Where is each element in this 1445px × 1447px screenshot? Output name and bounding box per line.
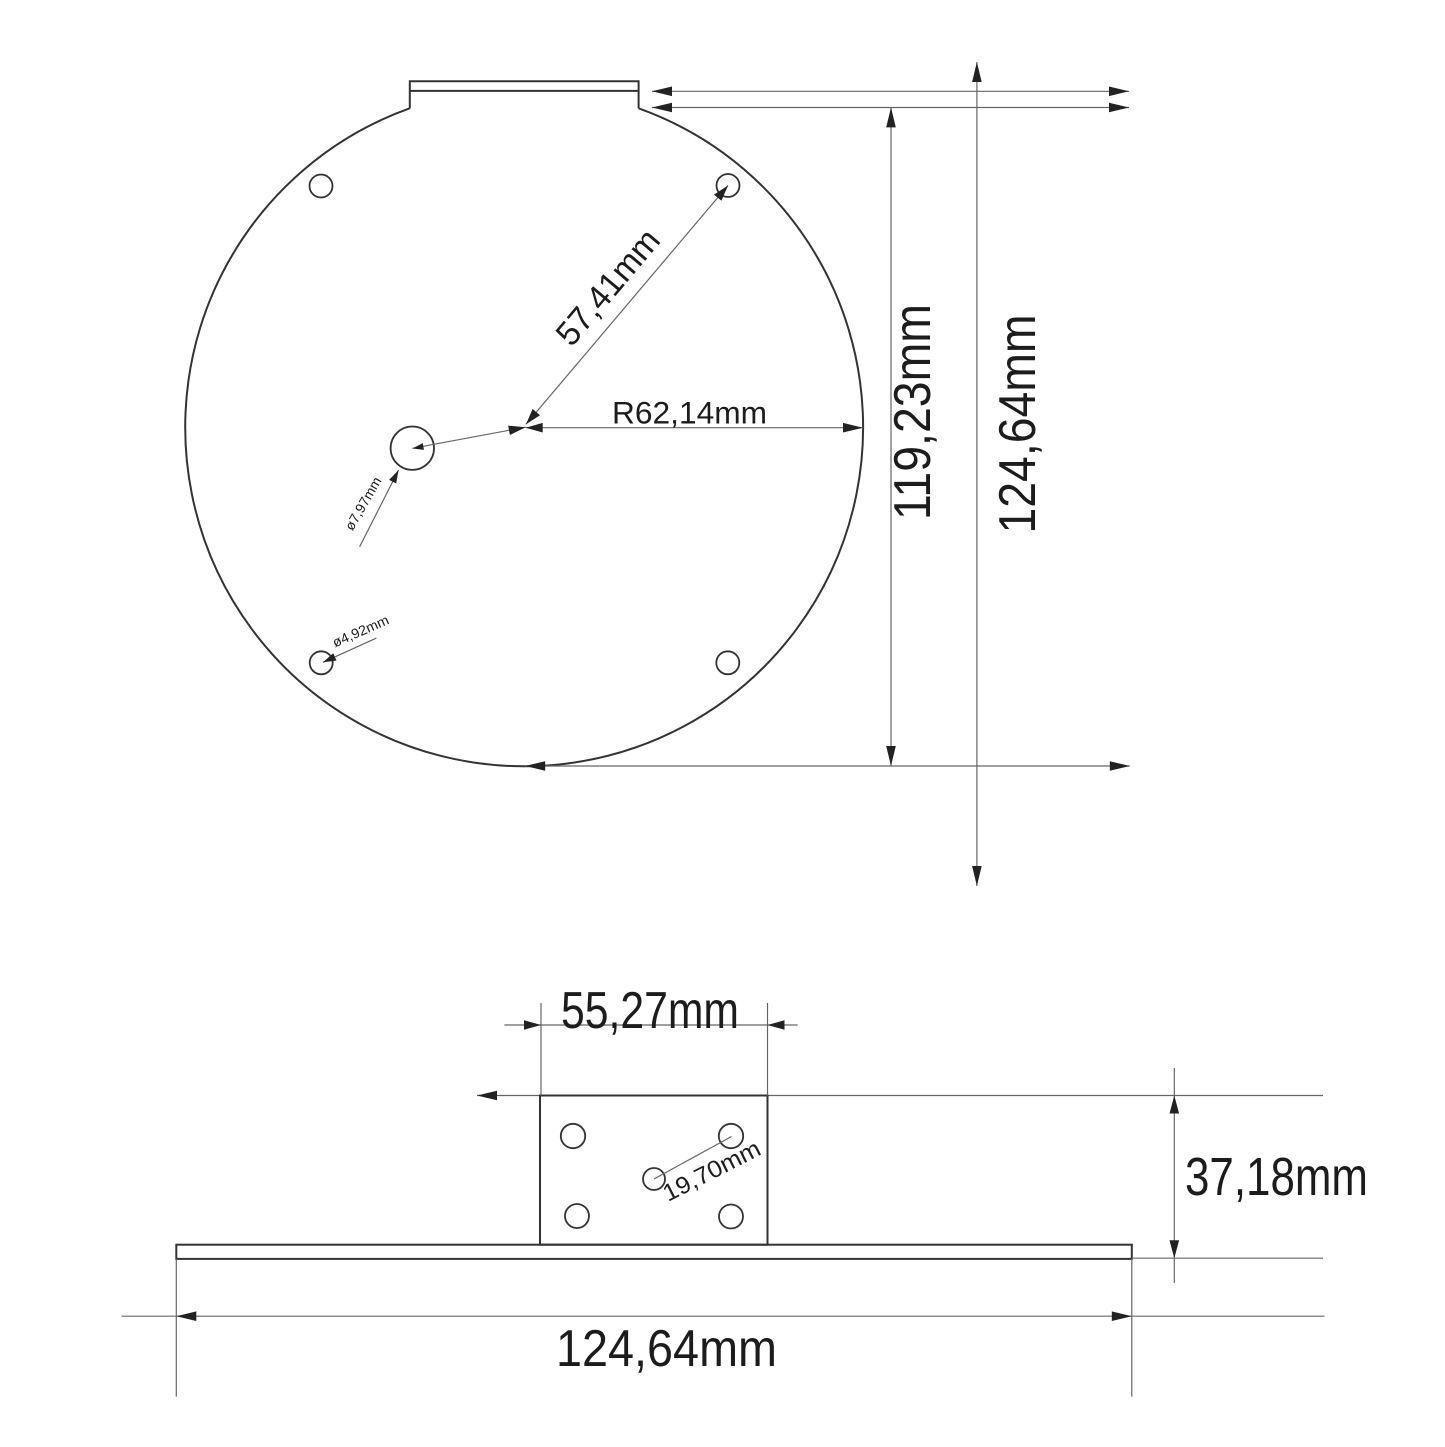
svg-text:R62,14mm: R62,14mm xyxy=(612,395,767,431)
svg-text:124,64mm: 124,64mm xyxy=(556,1320,777,1378)
svg-text:119,23mm: 119,23mm xyxy=(884,304,942,520)
svg-text:55,27mm: 55,27mm xyxy=(561,982,739,1040)
svg-text:124,64mm: 124,64mm xyxy=(989,315,1047,534)
svg-text:37,18mm: 37,18mm xyxy=(1185,1147,1368,1207)
